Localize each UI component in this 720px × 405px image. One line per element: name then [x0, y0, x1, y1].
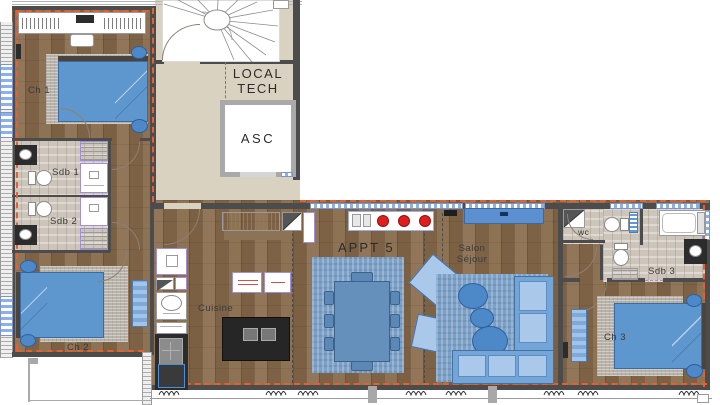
hob-sink-1 — [352, 214, 361, 227]
dining-chair-l1 — [324, 291, 334, 305]
room-label-wc: wc — [578, 227, 589, 237]
duct-shaft-1 — [282, 212, 302, 231]
sdb1-toilet-bowl — [36, 170, 52, 186]
wall-sdb2-ch2 — [12, 250, 110, 253]
kitchen-spec-box-1 — [232, 272, 262, 293]
window-west-1 — [0, 64, 13, 110]
sdb1-toilet-tank — [28, 171, 36, 185]
ch2-bed-pillows — [21, 273, 47, 337]
wc-toilet-tank — [620, 218, 629, 231]
window-west-3 — [0, 296, 13, 336]
sofa-cushion-2 — [519, 313, 547, 343]
room-label-sdb3: Sdb 3 — [648, 266, 675, 277]
sdb2-toilet-bowl — [36, 201, 52, 217]
balcony-end-marker — [697, 394, 709, 403]
kitchen-spec-text3 — [271, 282, 285, 283]
sdb3-toilet-bowl — [613, 249, 629, 266]
room-label-ch1: Ch 1 — [28, 85, 50, 96]
sdb1-shower-head — [89, 171, 99, 179]
ch2-stool-1 — [20, 260, 37, 273]
sofa-cushion-1 — [519, 281, 547, 311]
wc-toilet-icon — [604, 216, 630, 233]
salon-pouf-1 — [458, 283, 488, 309]
ch1-stool-1 — [131, 46, 147, 59]
balcony-sw-wall — [28, 358, 30, 402]
ch1-desk-monitor — [76, 15, 94, 23]
hob-sink-2 — [363, 214, 371, 227]
balcony-sw-pier — [30, 358, 38, 364]
ch3-stool-1 — [686, 294, 702, 307]
entry-cabinet-tall — [303, 212, 315, 243]
wall-wc-bottom — [563, 240, 605, 243]
dining-chair-r2 — [390, 314, 400, 328]
kitchen-spec-text2 — [238, 284, 258, 285]
wall-west-inner — [13, 6, 15, 355]
asc-door-sensor — [281, 172, 293, 177]
ch1-wardrobe-rail-left — [22, 18, 60, 29]
salon-tv-console — [464, 208, 544, 224]
ch3-wall-unit — [563, 342, 568, 358]
window-north-kitchen — [310, 203, 463, 209]
sdb1-toilet-icon — [28, 169, 53, 187]
sdb2-toilet-tank — [28, 202, 36, 216]
room-label-sdb2: Sdb 2 — [50, 216, 77, 227]
kitchen-fridge-icon — [166, 255, 178, 267]
sdb3-door-threshold — [645, 280, 663, 281]
wall-salon-ch3 — [558, 263, 563, 390]
wall-kitchen-west — [150, 203, 154, 355]
kitchen-washer-icon — [161, 295, 182, 311]
salon-tv — [444, 210, 457, 216]
sdb3-cabinet — [612, 268, 638, 280]
dining-chair-bottom — [351, 361, 373, 371]
kitchen-sink-line-v — [170, 342, 171, 360]
insulation-living-bottom — [155, 383, 707, 385]
ch1-bed-duvet — [115, 62, 147, 121]
local-tech-line2: TECH — [237, 81, 278, 96]
sdb1-shower-channel — [84, 185, 104, 186]
entry-shelf — [224, 231, 288, 240]
ch3-bed — [614, 303, 706, 369]
island-sink-1 — [243, 328, 258, 341]
beam-line-1 — [292, 213, 293, 383]
balcony-post-1 — [368, 386, 377, 403]
entry-closet — [222, 212, 280, 231]
window-west-2 — [0, 112, 13, 138]
beam-line-2 — [424, 213, 425, 383]
sdb3-bathtub-inner — [662, 213, 696, 233]
sofa-cushion-4 — [488, 355, 516, 377]
floor-plan: LOCAL TECH ASC Ch 1 Sdb 1 Sdb 2 — [0, 0, 720, 405]
duct-shaft-2 — [156, 277, 174, 290]
wc-toilet-bowl — [604, 217, 620, 232]
dining-chair-l2 — [324, 314, 334, 328]
kitchen-sink-line-h — [162, 350, 180, 351]
dining-table — [334, 281, 390, 362]
kitchen-spec-text1 — [238, 280, 258, 281]
duct-shaft-2-icon — [157, 280, 173, 291]
insulation-hall-west — [152, 8, 154, 202]
balcony-sw-edge — [28, 400, 150, 401]
room-label-appt5: APPT 5 — [338, 240, 395, 255]
local-tech-line1: LOCAL — [233, 66, 283, 81]
room-label-sdb1: Sdb 1 — [52, 167, 79, 178]
sofa-cushion-3 — [458, 355, 486, 377]
dining-chair-l3 — [324, 337, 334, 351]
sdb2-towel-radiator — [80, 228, 108, 250]
salon-line1: Salon — [459, 243, 486, 254]
wc-towel-radiator — [629, 212, 638, 233]
sdb3-toilet-icon — [612, 243, 630, 267]
sdb1-towel-radiator — [80, 141, 108, 161]
asc-door — [240, 172, 276, 177]
kitchen-sink — [159, 338, 183, 365]
dining-chair-r3 — [390, 337, 400, 351]
kitchen-label-box — [156, 322, 187, 334]
room-label-salon: Salon Séjour — [443, 243, 501, 265]
burner-2 — [398, 215, 410, 227]
wall-living-bottom — [150, 385, 710, 390]
ch2-stool-2 — [20, 334, 36, 347]
burner-1 — [377, 215, 389, 227]
sofa-cushion-5 — [518, 355, 547, 377]
ch3-stool-2 — [686, 364, 703, 378]
salon-line2: Séjour — [457, 254, 487, 265]
sdb3-bath-faucet — [697, 212, 705, 234]
room-label-local-tech: LOCAL TECH — [226, 66, 290, 96]
salon-pouf-2 — [470, 308, 494, 328]
ch2-bench — [132, 280, 148, 327]
insulation-living-top — [300, 200, 706, 202]
salon-console-detail — [500, 212, 508, 216]
sdb1-sink-icon — [19, 149, 32, 160]
room-label-ch2: Ch 2 — [67, 342, 89, 353]
ch1-wall-unit — [16, 44, 21, 59]
ch2-bed — [16, 272, 104, 338]
dining-chair-top — [351, 272, 373, 282]
ch1-desk-chair — [70, 34, 94, 47]
island-sink-2 — [261, 328, 276, 341]
ch3-bench — [571, 309, 587, 362]
ch3-bed-headboard — [702, 303, 706, 369]
wall-wc-sdb3 — [640, 207, 643, 245]
ch3-bed-pillows — [672, 304, 701, 368]
kitchen-washer-text1 — [163, 313, 180, 314]
sdb2-sink-icon — [19, 229, 32, 240]
sdb2-shower-head — [89, 204, 99, 212]
ch1-stool-2 — [131, 119, 148, 133]
sdb3-sink-icon — [689, 245, 702, 257]
kitchen-spec-box-2 — [264, 272, 291, 293]
dining-chair-r1 — [390, 291, 400, 305]
duct-shaft-1-icon — [283, 213, 301, 230]
room-label-asc: ASC — [228, 131, 288, 146]
burner-3 — [419, 215, 431, 227]
balcony-rail-line — [150, 398, 712, 399]
ch1-wardrobe-rail-right — [104, 18, 142, 29]
kitchen-cabinet-small — [175, 277, 187, 290]
kitchen-label-line — [160, 326, 182, 327]
window-north-sdb3 — [656, 203, 700, 209]
balcony-post-2 — [488, 386, 497, 403]
window-north-wc — [610, 203, 643, 209]
dimension-tag — [273, 0, 289, 9]
room-label-ch3: Ch 3 — [604, 332, 626, 343]
room-label-cuisine: Cuisine — [198, 303, 233, 314]
wall-sdb3-nook — [600, 245, 603, 280]
